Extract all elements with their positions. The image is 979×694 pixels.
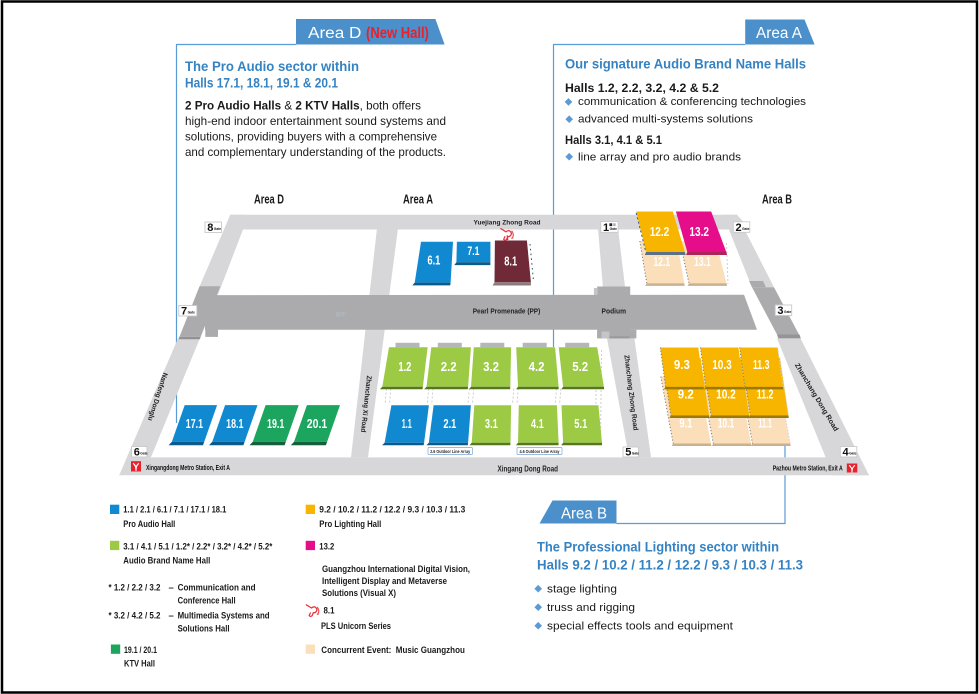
svg-text:5: 5	[625, 447, 631, 459]
svg-text:1: 1	[603, 222, 609, 234]
svg-text:3.1: 3.1	[485, 417, 498, 431]
svg-text:Gate: Gate	[610, 227, 617, 231]
svg-text:Pro Audio Hall: Pro Audio Hall	[123, 519, 175, 530]
svg-text:19.1: 19.1	[267, 416, 284, 431]
svg-text:Podium: Podium	[602, 307, 627, 316]
svg-text:Xingangdong Metro Station, Exi: Xingangdong Metro Station, Exit A	[146, 465, 230, 472]
svg-text:Pearl Promenade (PP): Pearl Promenade (PP)	[473, 307, 541, 316]
svg-text:Halls 17.1, 18.1, 19.1 & 20.1: Halls 17.1, 18.1, 19.1 & 20.1	[185, 76, 338, 92]
svg-text:Solutions Hall: Solutions Hall	[178, 624, 230, 635]
svg-text:7: 7	[181, 306, 187, 318]
svg-text:9.2: 9.2	[678, 388, 694, 402]
svg-text:Area B: Area B	[561, 506, 607, 523]
svg-text:KTV Hall: KTV Hall	[124, 658, 155, 669]
svg-text:10.2: 10.2	[716, 388, 736, 402]
svg-text:Concurrent Event: Music Guang: Concurrent Event: Music Guangzhou	[321, 645, 465, 656]
svg-text:Xingang Dong Road: Xingang Dong Road	[498, 463, 559, 473]
svg-text:4.1: 4.1	[531, 417, 544, 431]
svg-text:Multimedia Systems and: Multimedia Systems and	[178, 610, 270, 621]
svg-text:11.3: 11.3	[753, 358, 770, 372]
svg-text:6: 6	[134, 447, 140, 459]
svg-text:Gate: Gate	[784, 310, 791, 314]
svg-text:4.6 Outdoor Line Array: 4.6 Outdoor Line Array	[520, 449, 561, 454]
svg-text:high-end indoor entertainment: high-end indoor entertainment sound syst…	[185, 114, 446, 128]
svg-text:Area B: Area B	[762, 193, 792, 207]
svg-text:1.1: 1.1	[402, 417, 412, 431]
svg-text:7.1: 7.1	[467, 246, 479, 258]
svg-text:Gate: Gate	[188, 311, 195, 315]
svg-text:Area D: Area D	[254, 193, 284, 207]
svg-text:4.2: 4.2	[529, 360, 545, 374]
svg-text:2.1: 2.1	[443, 417, 456, 431]
svg-text:8.1: 8.1	[324, 605, 336, 616]
svg-text:Gate: Gate	[214, 227, 221, 231]
svg-text:1.2: 1.2	[398, 360, 411, 374]
svg-text:advanced multi-systems solutio: advanced multi-systems solutions	[578, 114, 753, 126]
svg-text:Halls 1.2, 2.2, 3.2, 4.2 & 5.2: Halls 1.2, 2.2, 3.2, 4.2 & 5.2	[565, 83, 719, 95]
svg-text:3: 3	[777, 305, 783, 317]
svg-text:9.3: 9.3	[674, 358, 690, 372]
svg-text:8: 8	[207, 222, 213, 234]
svg-text:communication & conferencing t: communication & conferencing technologie…	[578, 96, 806, 108]
svg-text:Our signature Audio Brand Name: Our signature Audio Brand Name Halls	[565, 57, 806, 73]
svg-text:9.2 / 10.2 / 11.2 / 12.2 / 9.3: 9.2 / 10.2 / 11.2 / 12.2 / 9.3 / 10.3 / …	[319, 505, 465, 516]
svg-text:B/F: B/F	[336, 311, 346, 318]
svg-text:Area A: Area A	[756, 25, 803, 42]
svg-text:Solutions (Visual X): Solutions (Visual X)	[322, 588, 396, 599]
svg-text:(New Hall): (New Hall)	[366, 25, 429, 42]
svg-text:2.6 Outdoor Line Array: 2.6 Outdoor Line Array	[430, 449, 471, 454]
svg-text:Yuejiang Zhong Road: Yuejiang Zhong Road	[474, 219, 541, 226]
svg-text:5.1: 5.1	[574, 417, 587, 431]
svg-text:* 1.2 / 2.2 / 3.2: * 1.2 / 2.2 / 3.2	[109, 582, 161, 593]
svg-text:Pro Lighting Hall: Pro Lighting Hall	[319, 519, 381, 530]
svg-text:13.2: 13.2	[319, 541, 334, 552]
svg-text:12.1: 12.1	[654, 255, 671, 269]
svg-text:13.1: 13.1	[694, 255, 711, 269]
svg-text:1.1 / 2.1 / 6.1 / 7.1 / 17.1 /: 1.1 / 2.1 / 6.1 / 7.1 / 17.1 / 18.1	[123, 505, 227, 516]
svg-text:Guangzhou International Digita: Guangzhou International Digital Vision,	[322, 564, 470, 575]
svg-text:special effects tools and equi: special effects tools and equipment	[547, 621, 734, 633]
svg-text:3.2: 3.2	[483, 360, 499, 374]
svg-text:2.2: 2.2	[441, 360, 457, 374]
svg-text:Halls 3.1, 4.1 & 5.1: Halls 3.1, 4.1 & 5.1	[565, 135, 663, 147]
svg-text:6.1: 6.1	[427, 254, 440, 268]
svg-text:truss and rigging: truss and rigging	[547, 602, 635, 614]
svg-text:10.3: 10.3	[712, 358, 732, 372]
svg-text:Communication and: Communication and	[178, 582, 256, 593]
svg-text:11.1: 11.1	[758, 417, 772, 431]
svg-text:17.1: 17.1	[186, 416, 203, 431]
svg-text:18.1: 18.1	[226, 416, 243, 431]
svg-text:Gate: Gate	[632, 452, 639, 456]
svg-text:11.2: 11.2	[757, 388, 774, 402]
svg-text:2 Pro Audio Halls & 2 KTV Hall: 2 Pro Audio Halls & 2 KTV Halls, both of…	[185, 99, 421, 113]
svg-text:stage lighting: stage lighting	[547, 584, 617, 596]
svg-text:10.1: 10.1	[718, 417, 735, 431]
svg-text:Area A: Area A	[403, 193, 433, 207]
svg-text:The Pro Audio sector within: The Pro Audio sector within	[185, 59, 359, 75]
svg-text:line array and pro audio brand: line array and pro audio brands	[578, 152, 741, 164]
svg-text:Halls 9.2 / 10.2 / 11.2 / 12.2: Halls 9.2 / 10.2 / 11.2 / 12.2 / 9.3 / 1…	[537, 558, 803, 574]
svg-text:5.2: 5.2	[572, 360, 588, 374]
svg-text:20.1: 20.1	[307, 416, 327, 431]
svg-text:3.1 / 4.1 / 5.1 / 1.2* / 2.2*: 3.1 / 4.1 / 5.1 / 1.2* / 2.2* / 3.2* / 4…	[123, 541, 272, 552]
svg-text:Gate: Gate	[140, 452, 147, 456]
svg-text:13.2: 13.2	[689, 225, 709, 239]
svg-text:* 3.2 / 4.2 / 5.2: * 3.2 / 4.2 / 5.2	[109, 610, 161, 621]
svg-text:and complementary understandin: and complementary understanding of the p…	[185, 145, 446, 159]
svg-text:Gate: Gate	[849, 452, 856, 456]
svg-text:19.1 / 20.1: 19.1 / 20.1	[124, 645, 158, 656]
svg-text:–: –	[169, 610, 174, 621]
svg-text:Pazhou Metro Station, Exit A: Pazhou Metro Station, Exit A	[773, 466, 843, 473]
svg-text:Gate: Gate	[742, 227, 749, 231]
svg-text:–: –	[169, 582, 174, 593]
svg-text:12.2: 12.2	[650, 225, 670, 239]
svg-text:9.1: 9.1	[679, 417, 692, 431]
svg-text:8.1: 8.1	[504, 254, 517, 268]
svg-text:solutions, providing buyers wi: solutions, providing buyers with a compr…	[185, 130, 437, 144]
svg-text:Conference Hall: Conference Hall	[178, 595, 236, 606]
svg-text:Area D: Area D	[308, 25, 361, 42]
svg-text:Audio Brand Name Hall: Audio Brand Name Hall	[123, 556, 210, 567]
svg-text:The Professional Lighting sect: The Professional Lighting sector within	[537, 540, 779, 556]
svg-text:PLS Unicorn Series: PLS Unicorn Series	[321, 621, 391, 632]
svg-text:Intelligent Display and Metave: Intelligent Display and Metaverse	[322, 576, 447, 587]
svg-text:2: 2	[736, 222, 742, 234]
